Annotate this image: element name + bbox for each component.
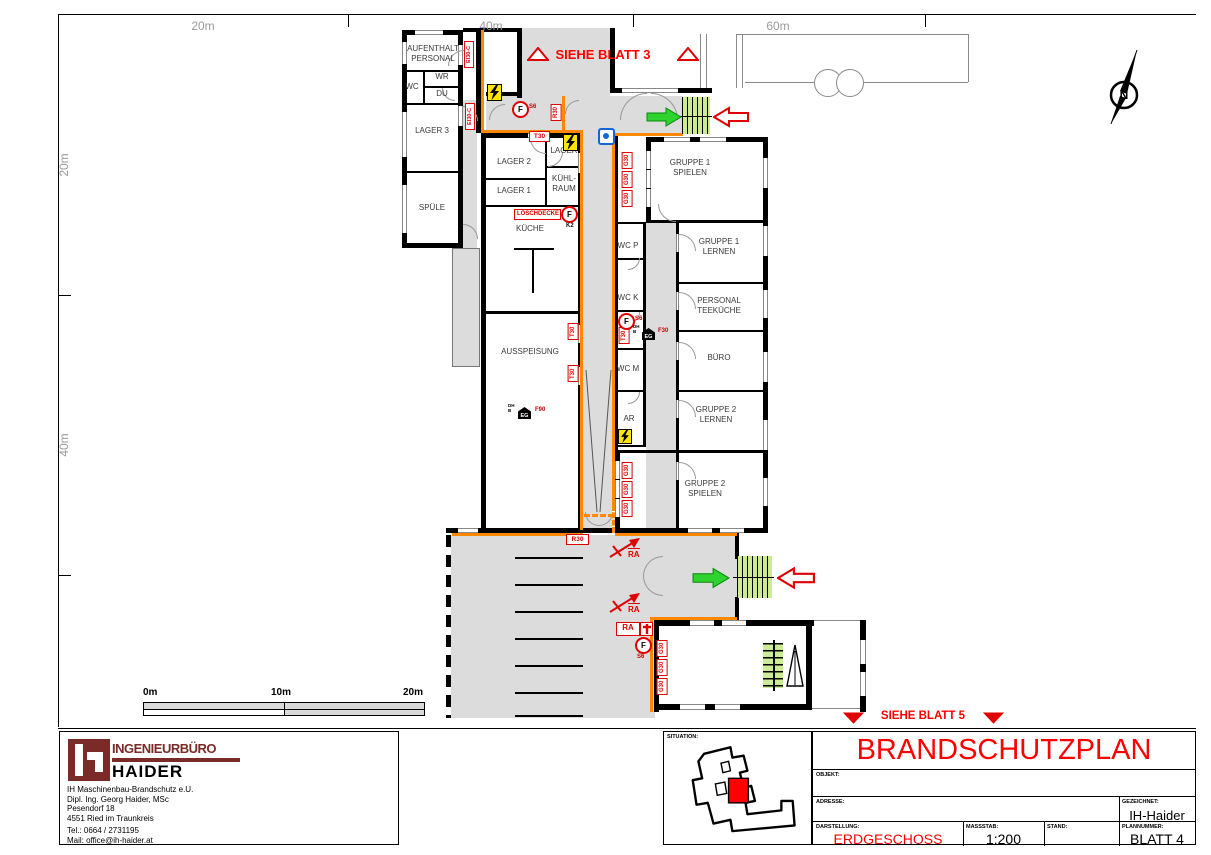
massstab-label: MASSSTAB: [966, 824, 998, 830]
window [680, 704, 705, 710]
scale-bar-body [143, 702, 425, 716]
objekt-label: OBJEKT: [816, 772, 840, 778]
north-compass-icon: N [1102, 48, 1146, 126]
partition [676, 282, 766, 284]
partition [481, 311, 583, 314]
window [415, 30, 443, 35]
darstellung-label: DARSTELLUNG: [816, 824, 859, 830]
door-gap [622, 88, 678, 93]
wall [860, 620, 866, 712]
room-label-wc-m: WC M [612, 364, 644, 374]
titleblock-top-line [58, 728, 1196, 729]
logo-mark [95, 760, 103, 772]
escape-route-line [615, 533, 737, 536]
outline-line [812, 708, 862, 709]
plot-line [515, 638, 583, 640]
fire-extinguisher-icon: F [512, 101, 529, 118]
scale-bar: 0m 10m 20m [143, 687, 425, 717]
window [715, 704, 740, 710]
room-label-ar: AR [616, 414, 642, 424]
north-letter: N [1120, 88, 1129, 102]
fire-tag-ei30c: EI30-C [464, 41, 474, 68]
room-label-wc-p: WC P [612, 241, 644, 251]
fire-tag-t30: T30 [529, 131, 550, 142]
window [860, 672, 866, 696]
company-line: IH Maschinenbau-Brandschutz e.U. [67, 785, 193, 795]
adresse-label: ADRESSE: [816, 799, 844, 805]
company-line: Dipl. Ing. Georg Haider, MSc [67, 795, 193, 805]
escape-route-line [562, 96, 565, 133]
room-label-lager3: LAGER 3 [404, 126, 460, 136]
fire-extinguisher-icon: F [561, 206, 578, 223]
fire-tag-ei30c: EI30-C [465, 103, 475, 130]
fire-tag-g30: G30 [622, 190, 633, 207]
door-gap [615, 461, 620, 479]
outline-line [812, 620, 862, 621]
room-label-wr: WR [427, 72, 457, 82]
window [860, 640, 866, 664]
corridor-fill [522, 28, 610, 96]
neighbour-outline [706, 34, 707, 88]
plannummer-value: BLATT 4 [1119, 831, 1195, 847]
wall [806, 620, 812, 710]
fire-tag-g30: G30 [657, 640, 668, 657]
wall [402, 243, 463, 248]
fire-tag-ra: RA [616, 622, 640, 636]
massstab-value: 1:200 [963, 831, 1044, 847]
situation-highlight [729, 778, 749, 803]
company-line: Tel.: 0664 / 2731195 [67, 826, 193, 836]
partition [618, 445, 646, 447]
window [722, 620, 746, 626]
room-label-buero: BÜRO [669, 353, 769, 363]
stair-line [678, 116, 712, 117]
corridor-fill [583, 133, 612, 533]
situation-miniplan [672, 742, 804, 842]
fire-tag-g30: G30 [622, 500, 633, 517]
escape-route-label: RA [628, 548, 640, 559]
window [690, 620, 714, 626]
escape-route-line-dashed [584, 514, 614, 517]
neighbour-outline [736, 34, 737, 88]
partition [618, 348, 646, 350]
plot-line [515, 557, 583, 559]
b-label: B [508, 408, 515, 413]
dashed-wall [446, 535, 451, 718]
reference-blatt5: SIEHE BLATT 5 [868, 710, 978, 722]
scale-segment [144, 710, 284, 715]
plannummer-label: PLANNUMMER: [1122, 824, 1164, 830]
partition [646, 220, 766, 223]
company-logo [68, 739, 110, 781]
fire-tag-g30: G30 [622, 171, 633, 188]
titleblock-line [1044, 821, 1045, 846]
gezeichnet-value: IH-Haider [1119, 808, 1195, 823]
partition [615, 222, 646, 224]
stand-label: STAND: [1047, 824, 1067, 830]
titleblock-line [813, 796, 1195, 797]
door-circle [836, 69, 864, 97]
logo-mark [75, 744, 83, 776]
room-label-gruppe2-lernen: GRUPPE 2 LERNEN [666, 405, 766, 424]
room-label-lager1: LAGER 1 [486, 186, 542, 196]
door-arc [679, 462, 696, 479]
ruler-label-left: 40m [57, 427, 71, 463]
wall-hydrant-icon [640, 622, 653, 636]
stair-line [733, 577, 774, 578]
storey-house-icon: EG [642, 328, 655, 340]
situation-box: SITUATION: [663, 731, 812, 845]
svg-text:EG: EG [645, 334, 653, 340]
scale-label: 10m [271, 687, 291, 698]
neighbour-outline [736, 34, 968, 35]
fire-tag-g30: G30 [657, 659, 668, 676]
reference-triangle-down-icon [843, 712, 864, 724]
ruler-label-left: 20m [57, 147, 71, 183]
kitchen-counter [514, 248, 554, 250]
company-address: IH Maschinenbau-Brandschutz e.U. Dipl. I… [67, 785, 193, 845]
b-label: B [633, 329, 640, 334]
window [664, 137, 690, 142]
ruler-label-top: 40m [473, 19, 509, 33]
lightning-icon [487, 84, 502, 101]
ruler-label-top: 60m [760, 19, 796, 33]
company-line: 4551 Ried im Traunkreis [67, 814, 193, 824]
plot-line [515, 715, 583, 717]
lightning-icon [618, 429, 632, 444]
partition [481, 178, 545, 180]
door-gap [646, 189, 651, 207]
room-label-wc-k: WC K [612, 293, 644, 303]
exit-arrow-green-icon [692, 566, 730, 590]
partition [676, 330, 766, 332]
titleblock: BRANDSCHUTZPLAN OBJEKT: ADRESSE: GEZEICH… [812, 731, 1196, 845]
kitchen-counter [532, 248, 534, 293]
access-arrow-red-icon [713, 106, 749, 128]
plot-line [515, 611, 583, 613]
fire-tag-g30: G30 [622, 152, 633, 169]
storey-house-icon: EG [518, 407, 531, 419]
fire-extinguisher-icon: F [635, 637, 652, 654]
room-label-gruppe1-lernen: GRUPPE 1 LERNEN [669, 237, 769, 256]
scale-label: 20m [403, 687, 423, 698]
window [763, 158, 768, 188]
titleblock-line [813, 769, 1195, 770]
door-arc [628, 392, 640, 404]
gezeichnet-label: GEZEICHNET: [1122, 799, 1159, 805]
brand-top: INGENIEURBÜRO [112, 741, 216, 756]
escape-route-line-dashed [612, 505, 615, 533]
room-label-wc: WC [403, 82, 421, 92]
fire-tag-g30: G30 [622, 481, 633, 498]
room-label-aufenthalt: AUFENTHALT PERSONAL [404, 44, 462, 63]
fire-tag-t30: T30 [568, 365, 579, 382]
fire-tag-f90: F90 [535, 407, 545, 413]
neighbour-outline [700, 34, 701, 88]
stairs [737, 556, 772, 598]
exit-arrow-green-icon [646, 106, 682, 128]
partition [676, 390, 766, 392]
hydrant-marker-icon [598, 128, 615, 145]
ruler-label-top: 20m [185, 19, 221, 33]
scale-segment [284, 710, 424, 715]
room-label-gruppe1-spielen: GRUPPE 1 SPIELEN [640, 158, 740, 177]
floor-plan: AUFENTHALT PERSONAL WC WR DU LAGER 3 SPÜ… [0, 0, 1211, 855]
svg-text:EG: EG [521, 413, 529, 419]
room-label-personal-teekueche: PERSONAL TEEKÜCHE [669, 296, 769, 315]
escape-route-line [452, 533, 583, 536]
lightning-icon [563, 134, 578, 151]
partition [402, 103, 460, 105]
room-label-ausspeisung: AUSSPEISUNG [490, 347, 570, 357]
fire-tag-g30: G30 [657, 678, 668, 695]
situation-label: SITUATION: [667, 734, 698, 740]
escape-ladder-icon [785, 643, 805, 688]
access-arrow-red-icon [777, 566, 815, 590]
plan-sheet: 20m 40m 60m 20m 40m [0, 0, 1211, 855]
wall [763, 137, 768, 533]
fire-tag-loeschdecke: LÖSCHDECKE [514, 209, 561, 220]
scale-divider [284, 703, 285, 715]
room-label-kueche: KÜCHE [500, 224, 560, 234]
stairs [682, 97, 710, 134]
window [763, 478, 768, 506]
window [763, 420, 768, 450]
escape-route-line [615, 133, 683, 136]
darstellung-value: ERDGESCHOSS [813, 831, 963, 847]
room-label-lager2: LAGER 2 [486, 157, 542, 167]
fire-tag-f30: F30 [658, 328, 668, 334]
room-label-kuehlraum: KÜHL- RAUM [545, 174, 583, 193]
scale-label: 0m [143, 687, 157, 698]
damper-marker: DH B [508, 403, 515, 414]
escape-route-line [481, 30, 484, 133]
door-gap [615, 480, 620, 498]
fire-tag-r30: R30 [551, 104, 562, 121]
company-box: INGENIEURBÜRO HAIDER IH Maschinenbau-Bra… [59, 731, 399, 845]
hydrant-dot [603, 133, 609, 139]
reference-triangle-down-icon [983, 712, 1004, 724]
extinguisher-type: S6 [635, 316, 642, 322]
plot-line [515, 692, 583, 694]
extinguisher-type: K2 [566, 223, 574, 229]
stair-pole [773, 640, 775, 691]
room-label-du: DU [427, 89, 457, 99]
company-line: Pesendorf 18 [67, 804, 193, 814]
wall [517, 28, 522, 98]
door-gap [615, 499, 620, 517]
neighbour-outline [968, 34, 969, 82]
room-label-spuele: SPÜLE [404, 203, 460, 213]
neighbour-outline [742, 34, 743, 88]
extinguisher-type: S6 [529, 104, 536, 110]
escape-route-line [612, 133, 615, 505]
exterior-ramp [452, 248, 480, 367]
escape-route-label: RA [628, 603, 640, 614]
reference-triangle-up-icon [677, 47, 699, 61]
door-arc [628, 258, 640, 270]
company-line: Mail: office@ih-haider.at [67, 836, 193, 846]
plot-line [515, 584, 583, 586]
damper-marker: DH B [633, 324, 640, 335]
fire-tag-g30: G30 [622, 462, 633, 479]
partition [402, 171, 460, 173]
spiral-stair [763, 643, 783, 688]
plot-line [515, 665, 583, 667]
partition [615, 450, 766, 453]
escape-route-line [650, 617, 737, 620]
fire-tag-r30: R30 [566, 534, 589, 545]
extinguisher-type: S6 [637, 654, 644, 660]
reference-blatt3: SIEHE BLATT 3 [543, 47, 663, 62]
window [700, 137, 726, 142]
logo-mark [87, 752, 103, 760]
fire-tag-t30: T30 [568, 323, 579, 340]
brand-bottom: HAIDER [112, 762, 183, 782]
plan-title: BRANDSCHUTZPLAN [813, 734, 1195, 767]
room-label-gruppe2-spielen: GRUPPE 2 SPIELEN [655, 479, 755, 498]
